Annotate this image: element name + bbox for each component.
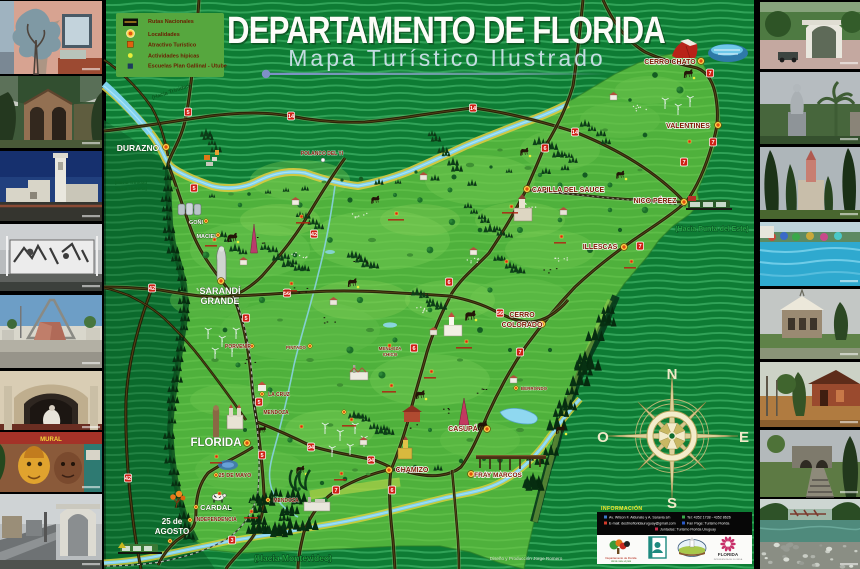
svg-text:MURAL: MURAL (40, 437, 62, 443)
svg-text:LA CRUZ: LA CRUZ (268, 392, 290, 398)
svg-text:5: 5 (244, 316, 247, 322)
svg-text:5: 5 (260, 453, 263, 459)
svg-text:6: 6 (412, 346, 415, 352)
svg-text:E-mail: destinofloridauruguay@: E-mail: destinofloridauruguay@gmail.com (609, 521, 676, 525)
svg-text:56: 56 (284, 291, 290, 297)
svg-text:7: 7 (518, 350, 521, 356)
svg-text:14: 14 (470, 106, 477, 112)
svg-text:7: 7 (638, 244, 641, 250)
svg-text:CHICO: CHICO (383, 352, 398, 357)
svg-text:14: 14 (288, 114, 295, 120)
svg-text:42: 42 (311, 232, 317, 238)
svg-text:Fan Page: Turismo Florida: Fan Page: Turismo Florida (687, 521, 729, 525)
svg-text:ILLESCAS: ILLESCAS (583, 244, 618, 251)
svg-text:INTENDENCIA DE FLORIDA: INTENDENCIA DE FLORIDA (714, 558, 743, 561)
svg-text:DURAZNO: DURAZNO (117, 143, 160, 153)
svg-text:56: 56 (497, 311, 503, 317)
svg-text:7: 7 (334, 488, 337, 494)
svg-text:GOÑI: GOÑI (189, 219, 204, 226)
svg-text:CERRO CHATO: CERRO CHATO (644, 59, 696, 66)
svg-text:5: 5 (186, 110, 189, 116)
svg-text:GRANDE: GRANDE (200, 296, 239, 306)
svg-text:Rutas Nacionales: Rutas Nacionales (148, 19, 194, 25)
svg-text:INFORMACIÓN: INFORMACIÓN (601, 504, 643, 512)
svg-text:Juntadas: Turismo Florida Urug: Juntadas: Turismo Florida Uruguay (660, 527, 716, 531)
svg-text:7: 7 (711, 140, 714, 146)
svg-text:donde nace el pais: donde nace el pais (611, 560, 632, 563)
svg-text:PORVENIR: PORVENIR (225, 344, 251, 350)
svg-text:Localidades: Localidades (148, 32, 180, 38)
svg-text:MENDOZA: MENDOZA (263, 410, 289, 416)
svg-text:6: 6 (390, 488, 393, 494)
svg-text:Av. Wilson F. Aldunate y A. Sa: Av. Wilson F. Aldunate y A. Saravia s/n (609, 515, 670, 519)
svg-text:COLORADO: COLORADO (502, 322, 543, 329)
svg-text:O: O (597, 429, 609, 446)
svg-text:BERRONDO: BERRONDO (521, 386, 548, 391)
svg-text:CARDAL: CARDAL (200, 503, 232, 512)
svg-text:INDEPENDENCIA: INDEPENDENCIA (195, 517, 237, 523)
svg-text:CERRO: CERRO (509, 312, 535, 319)
svg-text:5: 5 (192, 186, 195, 192)
svg-text:Santa Teresita): Santa Teresita) (115, 186, 147, 191)
svg-text:NICO PÉREZ: NICO PÉREZ (634, 196, 678, 205)
svg-text:E: E (739, 429, 749, 446)
svg-text:AGOSTO: AGOSTO (155, 527, 190, 536)
svg-text:Actividades hípicas: Actividades hípicas (148, 54, 199, 60)
svg-text:7: 7 (682, 160, 685, 166)
svg-text:SARANDÍ: SARANDÍ (199, 286, 241, 296)
svg-text:VALENTINES: VALENTINES (666, 123, 710, 130)
svg-text:Atractivo Turístico: Atractivo Turístico (148, 42, 197, 48)
svg-text:MENDOZA: MENDOZA (273, 498, 299, 504)
svg-text:FLORIDA: FLORIDA (718, 552, 739, 557)
svg-text:7: 7 (708, 71, 711, 77)
svg-text:25 de: 25 de (162, 517, 183, 526)
svg-text:Mapa Turístico Ilustrado: Mapa Turístico Ilustrado (288, 45, 605, 71)
svg-text:(Hacia Trinidad: (Hacia Trinidad (115, 180, 148, 185)
svg-text:S: S (667, 495, 677, 512)
svg-text:Diseño y Producción Jorge Rome: Diseño y Producción Jorge Romero (490, 556, 563, 561)
svg-text:FLORIDA: FLORIDA (190, 437, 241, 449)
svg-text:(Hacia Montevideo): (Hacia Montevideo) (254, 553, 332, 563)
svg-text:CAPILLA DEL SAUCE: CAPILLA DEL SAUCE (532, 187, 605, 194)
svg-text:14: 14 (572, 130, 579, 136)
svg-text:PINTADO: PINTADO (286, 345, 306, 350)
svg-text:CHAMIZO: CHAMIZO (396, 467, 429, 474)
svg-text:(Hacia Punta del Este): (Hacia Punta del Este) (675, 226, 749, 233)
svg-text:5: 5 (257, 400, 260, 406)
svg-text:N: N (667, 366, 678, 383)
svg-text:6: 6 (447, 280, 450, 286)
svg-text:42: 42 (125, 476, 131, 482)
svg-text:POLANCO DEL YI: POLANCO DEL YI (301, 151, 344, 157)
svg-text:Escuelas Plan Gallinal - Utube: Escuelas Plan Gallinal - Utube (148, 64, 227, 70)
svg-text:FRAY MARCOS: FRAY MARCOS (474, 472, 522, 479)
svg-text:Tel: 4352 1738 - 4352 8626: Tel: 4352 1738 - 4352 8626 (687, 515, 731, 519)
svg-text:94: 94 (368, 458, 375, 464)
svg-text:6: 6 (543, 146, 546, 152)
svg-text:CASUPÁ: CASUPÁ (448, 424, 478, 433)
svg-text:25 DE MAYO: 25 DE MAYO (219, 473, 253, 479)
svg-text:94: 94 (308, 445, 315, 451)
svg-text:42: 42 (149, 286, 155, 292)
svg-text:3: 3 (230, 538, 233, 544)
